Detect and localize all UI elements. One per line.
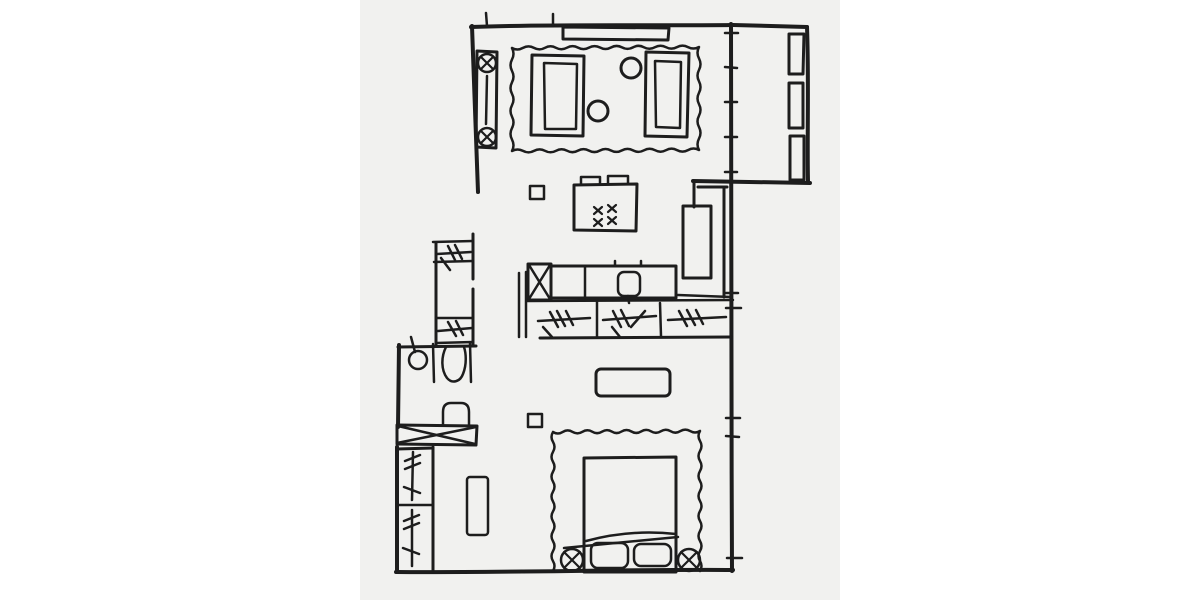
wall-switch-square-2 (528, 414, 542, 427)
appliance-x (529, 265, 550, 299)
closet-box-upper (433, 241, 473, 270)
bedside-lamp-left (561, 549, 583, 571)
toilet (433, 343, 471, 382)
closet-box-lower (436, 318, 473, 343)
hanger-tick (631, 311, 645, 327)
hanger-hatch-seg1 (538, 311, 590, 337)
closet-row (527, 300, 733, 338)
hanger-hatch-seg3 (668, 310, 726, 326)
lamp-cross (564, 552, 580, 568)
sofa-left-cushion (544, 63, 577, 129)
hanger-rail (538, 318, 590, 321)
sofa-right (645, 52, 689, 137)
round-basin (409, 351, 427, 369)
hanger-rail (438, 328, 472, 331)
wardrobe-section-2 (403, 510, 419, 566)
toilet-side-left (433, 344, 434, 382)
narrow-bench (467, 477, 488, 535)
hanger-tick (543, 327, 552, 337)
hanger-rail (437, 252, 471, 254)
arched-fixture (443, 403, 469, 425)
crossed-box-bathtub (397, 425, 477, 445)
hanger-hatch-seg2 (603, 310, 656, 337)
wardrobe-column (403, 452, 420, 566)
closet-bottom (434, 261, 473, 262)
planter-3 (790, 136, 804, 180)
crossed-box-appliance (528, 264, 551, 300)
bathroom (397, 337, 477, 445)
wardrobe-wall-top (397, 448, 433, 449)
pillow-right (634, 544, 671, 566)
bathroom-wall-left (398, 345, 399, 427)
sketch-panel (360, 0, 840, 600)
kitchen (528, 176, 731, 303)
radiator-center-line (486, 76, 487, 124)
planter-1 (789, 34, 804, 74)
sofa-right-cushion (655, 61, 681, 128)
kitchen-counter (551, 261, 676, 303)
counter-outline (551, 266, 676, 298)
basin-faucet-line (411, 337, 415, 352)
window-tick (725, 67, 737, 68)
hanger-rail (668, 317, 726, 320)
toilet-side-right (470, 343, 471, 382)
dresser-bench (596, 369, 670, 396)
toilet-bowl (442, 347, 465, 381)
wardrobe-section-1 (404, 452, 420, 500)
closet-top (433, 241, 473, 242)
hanger-tick (441, 258, 450, 270)
burner-x (594, 207, 602, 214)
burner-x (608, 217, 616, 224)
walls (396, 13, 810, 572)
bedside-lamp-right (678, 549, 700, 571)
hanger-rail (603, 316, 656, 320)
burner-x-marks (594, 205, 616, 226)
valve-cross-top (481, 57, 493, 69)
sink (618, 272, 640, 296)
fridge-cabinet (683, 206, 711, 278)
closet-row-bottom (540, 337, 731, 338)
round-side-table-1 (621, 58, 641, 78)
double-bed (584, 457, 676, 572)
bathtub-x (397, 426, 476, 444)
closet-row-divider-2 (660, 303, 661, 336)
round-side-table-2 (588, 101, 608, 121)
lamp-cross (681, 552, 697, 568)
closet-bottom (436, 342, 473, 343)
floor-plan-sketch (360, 0, 840, 600)
bedroom (467, 369, 702, 572)
balcony (789, 34, 804, 180)
living-room (476, 27, 701, 152)
hanger-tick (612, 327, 620, 337)
burner-x (608, 205, 616, 212)
balcony-top-wall (733, 25, 807, 27)
entry-closets (433, 241, 473, 343)
kitchen-island (574, 184, 637, 231)
stool-bump-1 (581, 177, 600, 184)
burner-x (594, 219, 602, 226)
top-wall-tick-1 (486, 13, 487, 26)
window-tick (726, 436, 739, 437)
radiator-panel (476, 51, 497, 148)
valve-cross-bottom (481, 131, 493, 143)
closet-row-top (527, 300, 733, 301)
pillow-left (591, 543, 628, 568)
balcony-right-wall (807, 27, 808, 181)
planter-2 (789, 83, 803, 128)
wall-switch-square-1 (530, 186, 544, 199)
tv-console (563, 27, 669, 40)
